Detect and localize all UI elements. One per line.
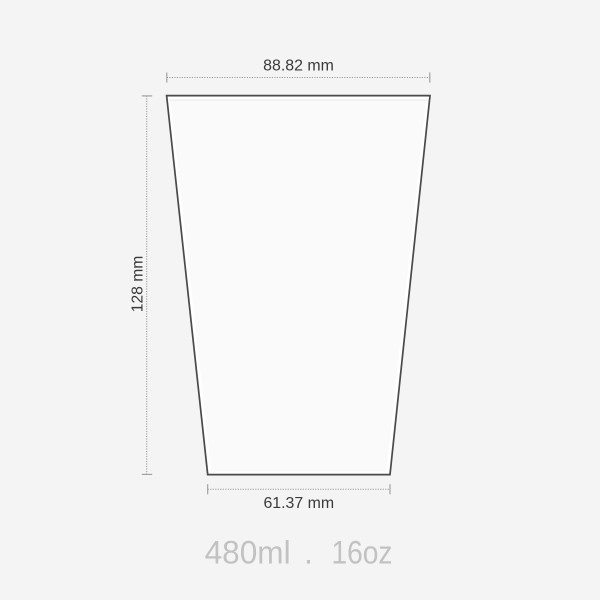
svg-text:61.37 mm: 61.37 mm xyxy=(263,495,334,512)
svg-text:128 mm: 128 mm xyxy=(130,256,147,313)
svg-text:480ml: 480ml xyxy=(205,535,291,571)
svg-text:88.82 mm: 88.82 mm xyxy=(263,58,334,75)
svg-text:.: . xyxy=(304,535,313,571)
svg-text:16oz: 16oz xyxy=(332,535,393,571)
